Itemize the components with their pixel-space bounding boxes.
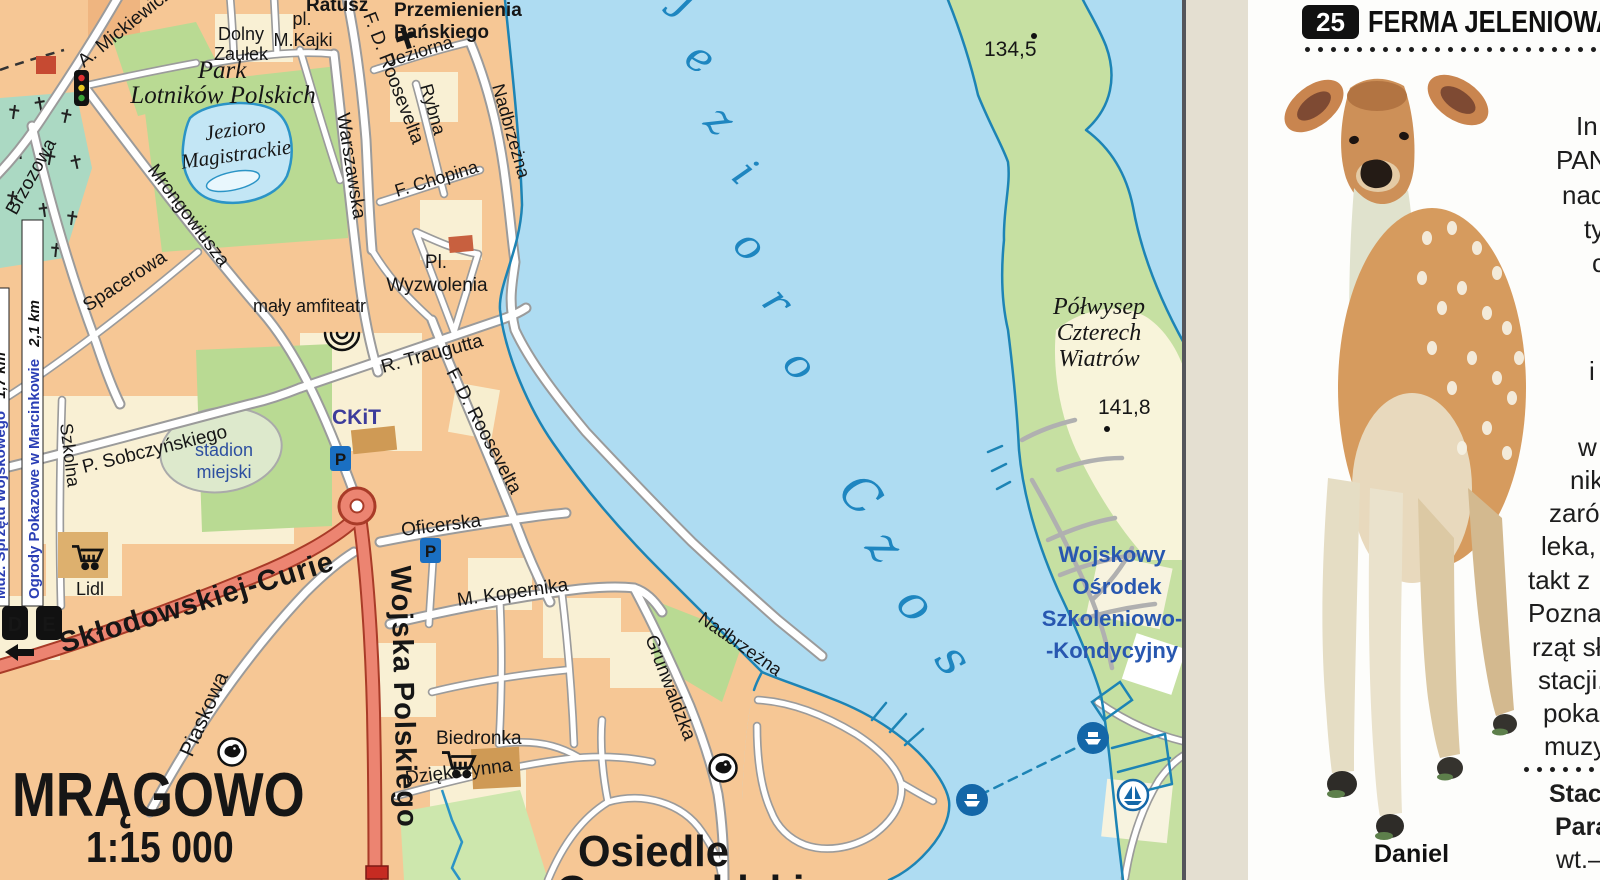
label-ratusz: Ratusz <box>306 0 368 16</box>
label-kajki-2: M.Kajki <box>273 30 332 50</box>
guide-text-line: muzy <box>1544 733 1600 759</box>
label-wojskowy-1: Wojskowy <box>1058 542 1166 567</box>
label-park-2: Lotników Polskich <box>129 82 315 109</box>
red-marker-box <box>366 866 388 879</box>
label-church-1: Przemienienia <box>394 0 522 21</box>
svg-text:Muz. Sprzętu Wojskowego: Muz. Sprzętu Wojskowego 1,7 km <box>0 352 9 599</box>
city-map-mragowo: P P Ratusz P <box>0 0 1185 880</box>
label-wojskowy-2: Ośrodek <box>1072 574 1162 599</box>
svg-text:Ogrody Pokazowe w Marcinkowie: Ogrody Pokazowe w Marcinkowie 2,1 km <box>26 300 43 599</box>
label-dolny-1: Dolny <box>218 24 264 44</box>
photo-caption: Daniel <box>1374 840 1449 869</box>
route-d-text: Muz. Sprzętu Wojskowego <box>0 411 9 599</box>
label-spot-134: 134,5 <box>984 38 1037 61</box>
guide-text-line: Pozna <box>1528 600 1600 626</box>
label-ckit: CKiT <box>332 406 381 429</box>
guide-text-line: In <box>1576 113 1598 139</box>
guide-text-line: nik <box>1570 467 1600 493</box>
guide-hours: wt.–n <box>1556 848 1600 873</box>
label-polwysep-3: Wiatrów <box>1058 346 1139 372</box>
deer-photo <box>1262 58 1530 850</box>
route-e-distance: 2,1 km <box>26 300 43 348</box>
guide-text-line: w <box>1578 434 1597 460</box>
page-margin <box>1186 0 1248 880</box>
page: { "map": { "title": "MRĄGOWO", "scale": … <box>0 0 1600 880</box>
label-wyzwolenia-1: Pl. <box>425 252 447 273</box>
guide-info-bold-2: Paraz <box>1555 815 1600 840</box>
label-polwysep-1: Półwysep <box>1052 294 1145 320</box>
guide-info-bold-1: Stacja <box>1549 782 1600 807</box>
parking-icon-2: P <box>420 538 441 563</box>
route-e-text: Ogrody Pokazowe w Marcinkowie <box>26 359 43 599</box>
guide-text-line: ty <box>1584 216 1600 242</box>
sailing-icon <box>1118 780 1148 810</box>
ferry-icon-2 <box>1077 722 1109 754</box>
red-building <box>36 56 56 74</box>
label-stadion-2: miejski <box>196 462 251 482</box>
label-amfiteatr: mały amfiteatr <box>253 296 366 316</box>
parking-letter: P <box>425 542 436 561</box>
label-wojskowy-4: -Kondycyjny <box>1046 638 1179 663</box>
route-d-badge: D <box>8 614 22 636</box>
dotted-separator-2 <box>1520 766 1600 773</box>
map-scale: 1:15 000 <box>86 822 234 872</box>
guide-text-line: rząt sł <box>1532 634 1600 660</box>
ckit-building <box>351 426 397 454</box>
parking-letter: P <box>335 450 346 469</box>
guide-number: 25 <box>1316 7 1345 38</box>
route-e-badge: E <box>42 614 55 636</box>
label-park-1: Park <box>197 57 248 84</box>
label-biedronka: Biedronka <box>436 728 522 749</box>
map-title: MRĄGOWO <box>12 761 305 830</box>
guide-text-line: PAN <box>1556 147 1600 173</box>
label-spot-141: 141,8 <box>1098 396 1151 419</box>
guide-title: FERMA JELENIOWA <box>1368 4 1600 40</box>
guide-text-line: pokaz <box>1543 700 1600 726</box>
dotted-separator <box>1301 46 1600 53</box>
guide-text-line: i <box>1589 358 1595 384</box>
elevation-dot-2 <box>1104 426 1110 432</box>
label-osiedle-2: Grunwaldzkie <box>556 867 828 880</box>
route-d-distance: 1,7 km <box>0 352 9 399</box>
label-wyzwolenia-2: Wyzwolenia <box>386 275 488 296</box>
label-stadion-1: stadion <box>195 440 253 460</box>
bird-icon-2 <box>710 755 737 782</box>
guide-text-line: stacji. <box>1538 667 1600 693</box>
label-kajki-1: pl. <box>292 9 311 29</box>
guide-text-line: nad <box>1562 182 1600 208</box>
red-building-2 <box>448 235 473 253</box>
guide-number-badge: 25 <box>1302 5 1359 39</box>
traffic-light-icon <box>74 70 89 106</box>
label-lidl: Lidl <box>76 579 104 599</box>
parking-icon: P <box>330 446 351 471</box>
ferry-icon <box>956 784 988 816</box>
label-polwysep-2: Czterech <box>1057 320 1141 346</box>
guide-text-line: leka, <box>1541 533 1596 559</box>
label-wojskowy-3: Szkoleniowo- <box>1042 606 1183 631</box>
guide-text-line: c <box>1592 250 1600 276</box>
guide-text-line: zaró <box>1549 500 1600 526</box>
guide-text-line: takt z <box>1528 567 1590 593</box>
